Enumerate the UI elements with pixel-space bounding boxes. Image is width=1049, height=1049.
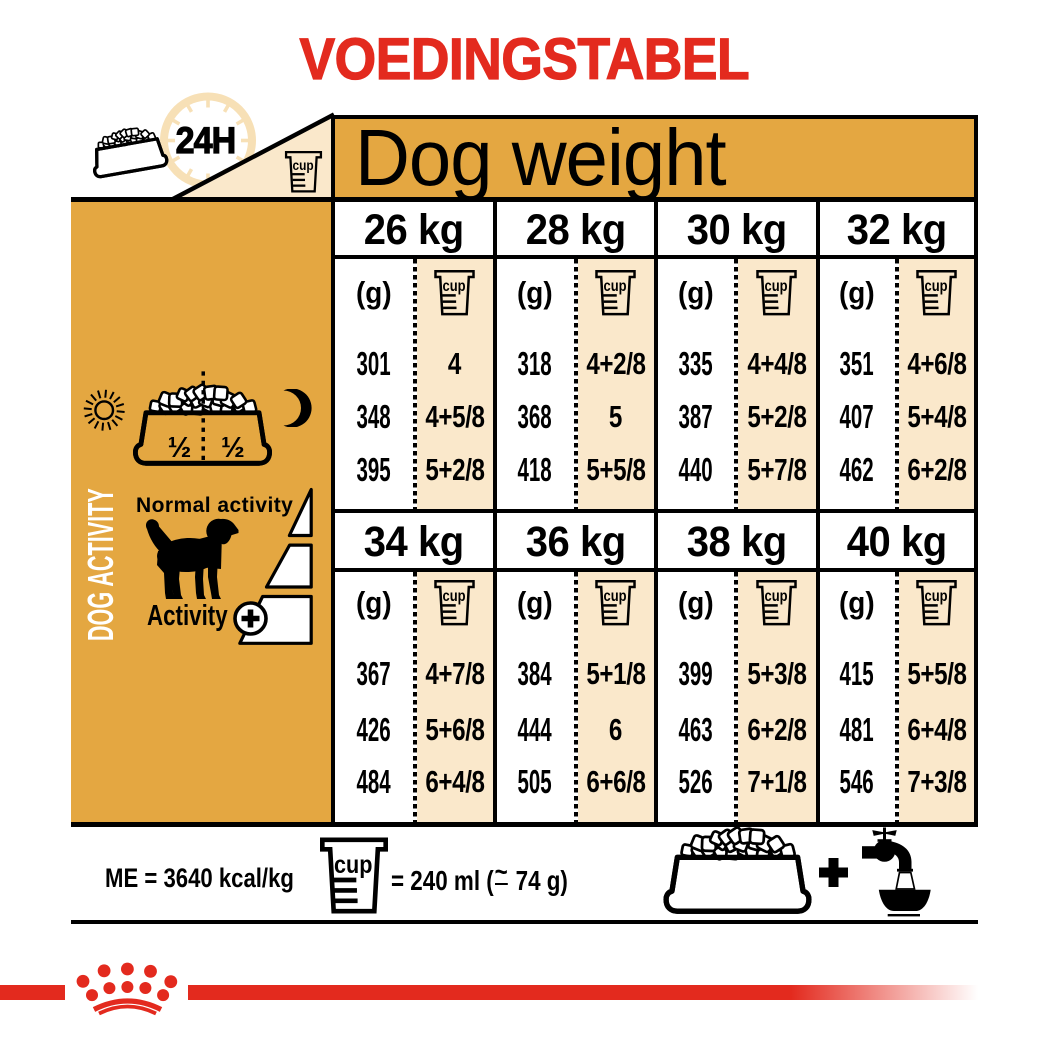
svg-text:cup: cup bbox=[293, 157, 314, 173]
svg-text:cup: cup bbox=[604, 588, 627, 605]
svg-text:cup: cup bbox=[443, 588, 466, 605]
svg-text:½: ½ bbox=[167, 431, 191, 463]
svg-text:cup: cup bbox=[604, 278, 627, 295]
svg-text:cup: cup bbox=[924, 278, 947, 295]
svg-text:cup: cup bbox=[443, 278, 466, 295]
svg-text:cup: cup bbox=[924, 588, 947, 605]
svg-text:cup: cup bbox=[765, 588, 788, 605]
svg-text:cup: cup bbox=[334, 852, 372, 879]
svg-text:½: ½ bbox=[220, 431, 244, 463]
svg-text:cup: cup bbox=[765, 278, 788, 295]
